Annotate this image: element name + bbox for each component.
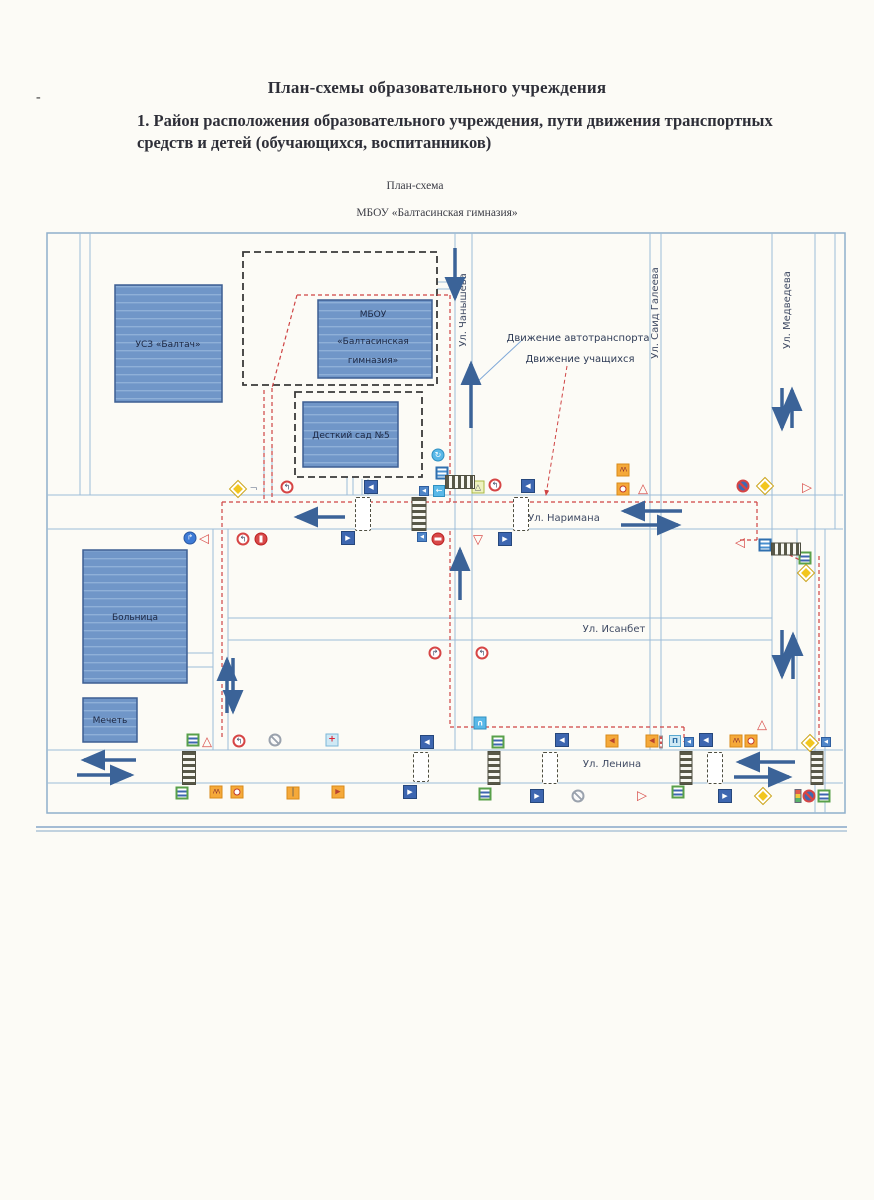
scanned-page: - План-схемы образовательного учреждения… — [0, 0, 874, 1200]
kindergarten-label: Десткий сад №5 — [312, 431, 389, 441]
usz-label: УСЗ «Балтач» — [136, 340, 201, 350]
mosque-label: Мечеть — [93, 716, 128, 726]
page-underline — [36, 827, 847, 831]
gym-label-3: гимназия» — [348, 356, 398, 366]
legend-students-label: Движение учащихся — [525, 354, 634, 365]
street-label-said-galeeva: Ул. Саид Галеева — [650, 267, 661, 359]
legend: Движение автотранспорта Движение учащихс… — [475, 333, 650, 495]
buildings — [83, 285, 432, 742]
legend-students-leader — [546, 366, 567, 495]
hospital-label: Больница — [112, 613, 158, 623]
plan-scheme-map: УСЗ «Балтач» МБОУ «Балтасинская гимназия… — [0, 0, 874, 1200]
street-label-chanysheva: Ул. Чанышева — [458, 273, 469, 347]
street-label-medvedeva: Ул. Медведева — [782, 271, 793, 349]
street-label-narimana: Ул. Наримана — [528, 513, 600, 524]
street-label-isanbet: Ул. Исанбет — [583, 624, 646, 635]
gym-label-2: «Балтасинская — [337, 337, 409, 347]
gym-label-1: МБОУ — [360, 310, 387, 320]
street-label-lenina: Ул. Ленина — [583, 759, 641, 770]
legend-auto-leader — [475, 341, 521, 384]
legend-auto-label: Движение автотранспорта — [507, 333, 650, 344]
